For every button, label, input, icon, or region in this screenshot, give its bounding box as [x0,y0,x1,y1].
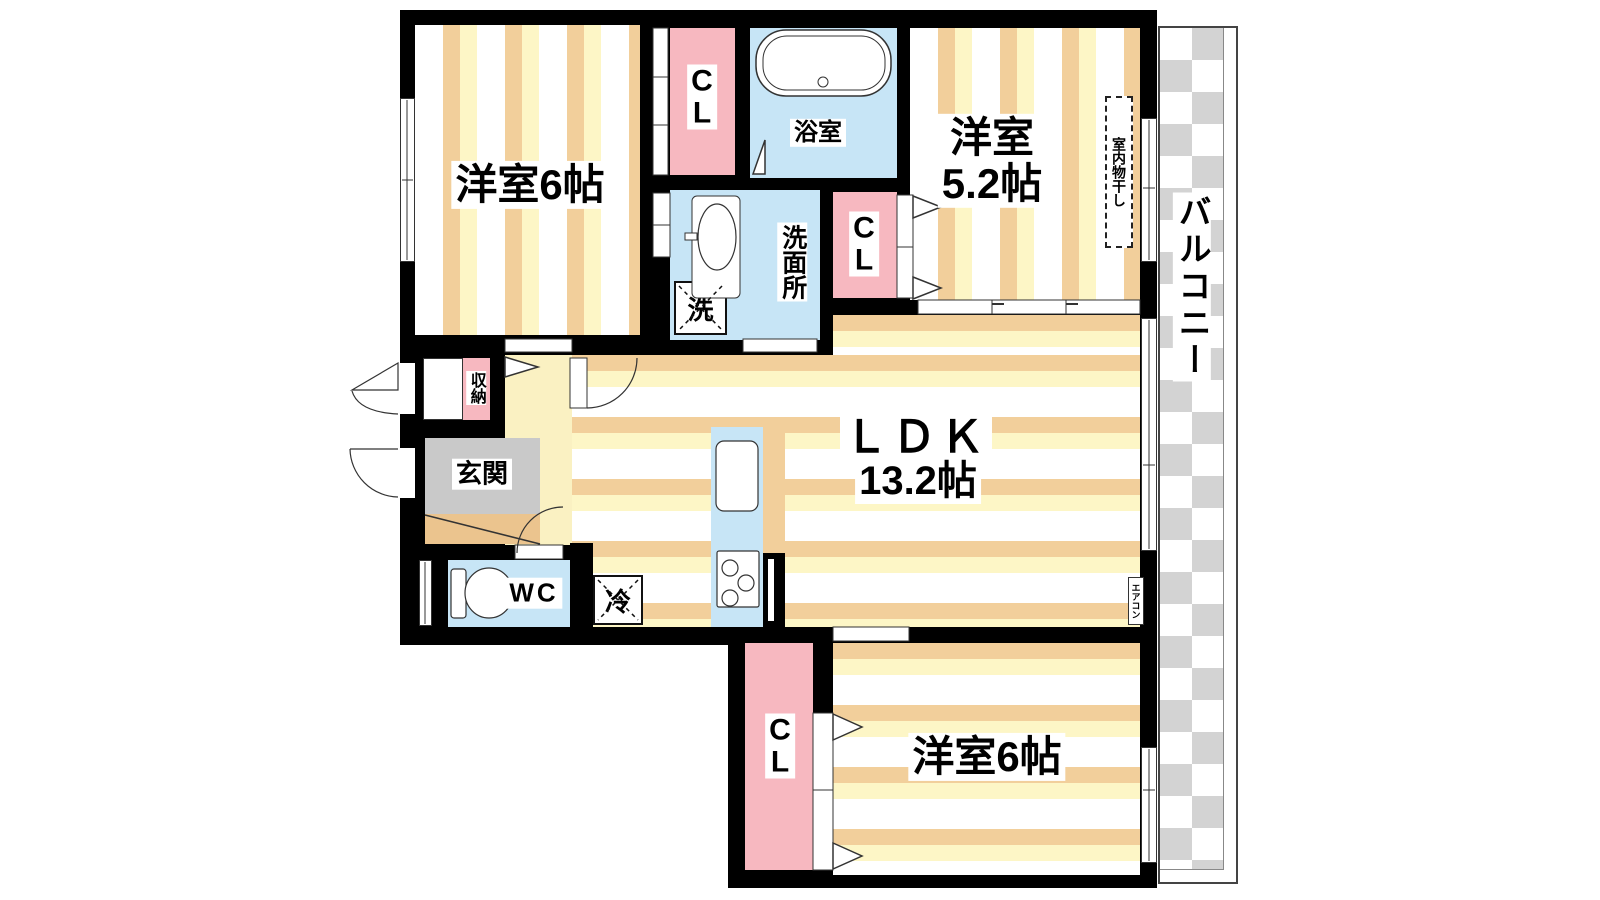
kitchen-counter-edge [763,427,785,553]
kitchen-counter [711,427,763,627]
window-room-bottom [1141,747,1157,863]
floor-plan: バルコニー 洗 冷 室内物干し エアコン [0,0,1600,900]
entrance-step [425,514,540,544]
window-toilet [419,560,432,626]
western-room-5-2-label: 洋室5.2帖 [938,114,1046,208]
western-room-5-2-line1: 洋室 [942,115,1042,161]
closet-middle-letter1: C [853,213,875,245]
western-room-6-bottom-label: 洋室6帖 [908,733,1065,781]
bathroom [750,28,897,178]
western-room-5-2-line2: 5.2帖 [942,161,1042,207]
closet-bottom-letter1: C [769,715,791,747]
closet-bottom-letter2: L [769,746,791,778]
entrance-opening-lower [400,448,415,498]
ldk-upper-part [833,315,1140,355]
refrigerator-space: 冷 [593,575,643,625]
window-room-top-left [400,98,415,262]
storage-door [423,358,463,420]
kitchen-wall-stub [763,553,785,627]
closet-middle-label: CL [849,212,879,277]
ldk-label-line1: ＬＤＫ [840,413,992,463]
air-conditioner-space: エアコン [1128,577,1144,625]
western-room-6-top-label: 洋室6帖 [451,161,608,209]
closet-top-letter1: C [691,66,713,98]
washing-machine-space: 洗 [674,281,727,335]
balcony-floor [1160,28,1224,870]
toilet-label: WC [505,578,562,609]
closet-middle-letter2: L [853,244,875,276]
window-room-5-2 [1141,118,1157,262]
storage-label: 収納 [466,371,486,405]
washroom-label: 洗面所 [777,223,807,302]
ldk-label-line2: 13.2帖 [855,458,981,504]
wall-toilet-right [570,543,593,627]
refrigerator-label: 冷 [604,582,632,619]
entrance-opening-upper [400,363,415,414]
indoor-drying-label: 室内物干し [1109,137,1129,207]
bathroom-label: 浴室 [790,119,846,147]
window-ldk-balcony [1141,318,1157,551]
washing-machine-label: 洗 [686,290,714,327]
closet-top-letter2: L [691,97,713,129]
closet-bottom-label: CL [765,714,795,779]
indoor-drying-space: 室内物干し [1105,96,1133,248]
air-conditioner-label: エアコン [1130,583,1143,619]
balcony-label: バルコニー [1173,193,1211,382]
closet-top-label: CL [687,65,717,130]
balcony [1158,26,1238,884]
entrance-label: 玄関 [452,459,512,490]
